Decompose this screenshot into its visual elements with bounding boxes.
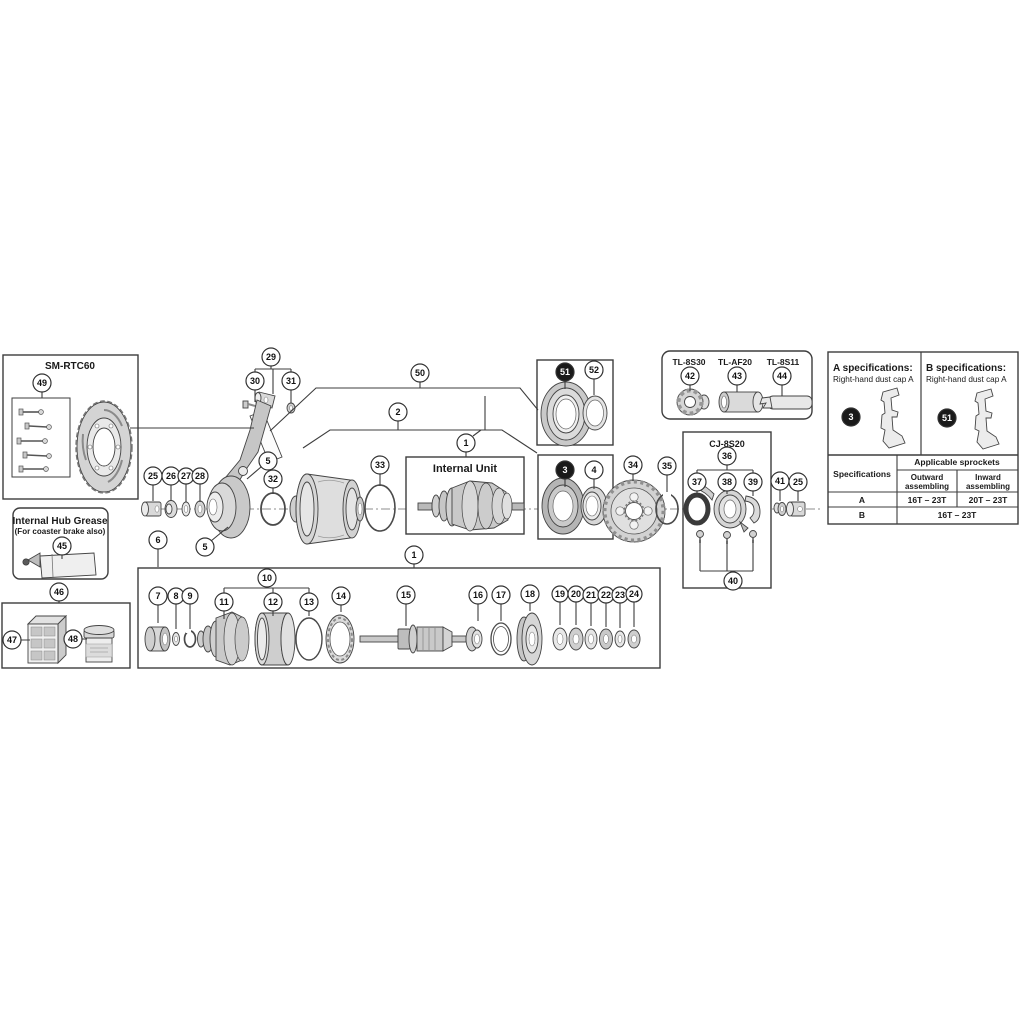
callout-47: 47 — [3, 631, 21, 649]
svg-text:21: 21 — [586, 590, 596, 600]
spec-a-title: A specifications: — [833, 363, 913, 374]
svg-text:28: 28 — [195, 471, 205, 481]
grease-carton — [28, 616, 66, 663]
tool-cylinder-43 — [719, 392, 763, 412]
svg-text:25: 25 — [148, 471, 158, 481]
part-drum-12 — [255, 613, 295, 665]
svg-text:34: 34 — [628, 460, 638, 470]
hub-shell — [290, 474, 364, 544]
part-washer-27 — [182, 502, 190, 516]
callout-5: 5 — [196, 538, 214, 556]
table-col2-line1: Inward — [975, 473, 1001, 482]
svg-text:49: 49 — [37, 378, 47, 388]
svg-text:19: 19 — [555, 589, 565, 599]
part-washer-21 — [585, 629, 597, 649]
callout-3: 3 — [556, 461, 574, 479]
part-ball-ring-14 — [326, 615, 354, 663]
part-washer-23 — [615, 631, 625, 647]
part-washer-8 — [173, 633, 180, 646]
callout-16: 16 — [469, 586, 487, 604]
callout-2: 2 — [389, 403, 407, 421]
svg-text:25: 25 — [793, 477, 803, 487]
brake-arm-pivot — [239, 467, 248, 476]
internal-unit-label: Internal Unit — [433, 463, 498, 475]
callout-17: 17 — [492, 586, 510, 604]
dust-cap-3 — [542, 478, 584, 534]
spec-panel: A specifications: Right-hand dust cap A … — [828, 352, 1018, 524]
svg-text:40: 40 — [728, 576, 738, 586]
callout-15: 15 — [397, 586, 415, 604]
svg-text:13: 13 — [304, 597, 314, 607]
svg-text:37: 37 — [692, 477, 702, 487]
svg-text:2: 2 — [395, 407, 400, 417]
table-row-a-inward: 20T – 23T — [969, 495, 1009, 505]
callout-44: 44 — [773, 367, 791, 385]
svg-text:41: 41 — [775, 476, 785, 486]
callout-4: 4 — [585, 461, 603, 479]
callout-32: 32 — [264, 470, 282, 488]
spec-a-subtitle: Right-hand dust cap A — [833, 375, 914, 384]
callout-20: 20 — [568, 586, 584, 602]
callout-11: 11 — [215, 593, 233, 611]
part-nut-20 — [569, 628, 583, 650]
svg-text:42: 42 — [685, 371, 695, 381]
callout-18: 18 — [521, 585, 539, 603]
spec-b-title: B specifications: — [926, 363, 1006, 374]
tool-label-tl8s30: TL-8S30 — [672, 357, 705, 367]
table-col2-line2: assembling — [966, 482, 1010, 491]
table-row-a-outward: 16T – 23T — [908, 495, 948, 505]
svg-text:44: 44 — [777, 371, 787, 381]
svg-text:14: 14 — [336, 591, 346, 601]
rotor-kit-box: SM-RTC60 — [3, 355, 138, 499]
callout-26: 26 — [162, 467, 180, 485]
table-col1-line2: assembling — [905, 482, 949, 491]
callout-36: 36 — [718, 447, 736, 465]
svg-text:16: 16 — [473, 590, 483, 600]
svg-text:51: 51 — [560, 367, 570, 377]
svg-text:52: 52 — [589, 365, 599, 375]
svg-text:22: 22 — [601, 590, 611, 600]
callout-38: 38 — [718, 473, 736, 491]
part-cap-nut-25 — [142, 502, 162, 516]
svg-text:7: 7 — [155, 591, 160, 601]
svg-text:9: 9 — [187, 591, 192, 601]
callout-42: 42 — [681, 367, 699, 385]
callout-13: 13 — [300, 593, 318, 611]
part-washer-19 — [553, 628, 567, 650]
callout-21: 21 — [583, 587, 599, 603]
callout-31: 31 — [282, 372, 300, 390]
callout-46: 46 — [50, 583, 68, 601]
svg-text:46: 46 — [54, 587, 64, 597]
svg-text:36: 36 — [722, 451, 732, 461]
grease-subtitle: (For coaster brake also) — [15, 527, 106, 536]
spec-b-subtitle: Right-hand dust cap A — [926, 375, 1007, 384]
callout-45: 45 — [53, 537, 71, 555]
part-cone-26 — [165, 501, 177, 518]
callout-19: 19 — [552, 586, 568, 602]
svg-text:50: 50 — [415, 368, 425, 378]
svg-text:26: 26 — [166, 471, 176, 481]
part-flange-unit-18 — [517, 613, 542, 665]
part-cap-nut-24 — [628, 630, 640, 648]
table-col1-line1: Outward — [911, 473, 944, 482]
svg-text:1: 1 — [463, 438, 468, 448]
callout-1: 1 — [405, 546, 423, 564]
svg-text:1: 1 — [411, 550, 416, 560]
svg-text:38: 38 — [722, 477, 732, 487]
svg-text:23: 23 — [615, 590, 625, 600]
table-row-header: Specifications — [833, 469, 891, 479]
table-row-a-spec: A — [859, 495, 865, 505]
svg-text:35: 35 — [662, 461, 672, 471]
tool-wrench-44 — [760, 396, 812, 409]
callout-49: 49 — [33, 374, 51, 392]
o-ring-33 — [365, 485, 395, 531]
svg-text:3: 3 — [848, 412, 853, 422]
callout-35: 35 — [658, 457, 676, 475]
svg-text:17: 17 — [496, 590, 506, 600]
svg-text:8: 8 — [173, 591, 178, 601]
callout-24: 24 — [626, 586, 642, 602]
callout-25: 25 — [789, 473, 807, 491]
svg-text:45: 45 — [57, 541, 67, 551]
part-nut-22 — [600, 629, 613, 649]
callout-12: 12 — [264, 593, 282, 611]
tool-label-tl8s11: TL-8S11 — [767, 357, 800, 367]
callout-50: 50 — [411, 364, 429, 382]
svg-text:5: 5 — [265, 456, 270, 466]
tool-label-tlaf20: TL-AF20 — [718, 357, 752, 367]
table-group-header: Applicable sprockets — [914, 457, 1000, 467]
callout-30: 30 — [246, 372, 264, 390]
callout-48: 48 — [64, 630, 82, 648]
svg-text:27: 27 — [181, 471, 191, 481]
callout-25: 25 — [144, 467, 162, 485]
svg-text:51: 51 — [942, 413, 952, 423]
svg-text:6: 6 — [155, 535, 160, 545]
svg-text:33: 33 — [375, 460, 385, 470]
callout-43: 43 — [728, 367, 746, 385]
callout-51: 51 — [556, 363, 574, 381]
svg-text:3: 3 — [562, 465, 567, 475]
callout-41: 41 — [771, 472, 789, 490]
exploded-diagram: SM-RTC60 Internal Hub Grease (For coaste — [0, 0, 1024, 1024]
callout-33: 33 — [371, 456, 389, 474]
callout-7: 7 — [149, 587, 167, 605]
callout-28: 28 — [192, 468, 208, 484]
callout-14: 14 — [332, 587, 350, 605]
callout-9: 9 — [182, 588, 198, 604]
internal-unit-box: Internal Unit — [406, 457, 524, 534]
seal-ring-52 — [583, 396, 607, 430]
svg-text:39: 39 — [748, 477, 758, 487]
svg-text:24: 24 — [629, 589, 639, 599]
table-row-b-spec: B — [859, 510, 865, 520]
callout-1: 1 — [457, 434, 475, 452]
svg-text:43: 43 — [732, 371, 742, 381]
callout-51: 51 — [938, 409, 956, 427]
callout-34: 34 — [624, 456, 642, 474]
svg-text:29: 29 — [266, 352, 276, 362]
svg-text:11: 11 — [219, 597, 229, 607]
svg-text:48: 48 — [68, 634, 78, 644]
svg-text:31: 31 — [286, 376, 296, 386]
callout-29: 29 — [262, 348, 280, 366]
svg-text:20: 20 — [571, 589, 581, 599]
brake-cone-unit — [207, 476, 250, 538]
part-washer-28 — [195, 501, 205, 517]
svg-text:18: 18 — [525, 589, 535, 599]
svg-text:4: 4 — [591, 465, 596, 475]
grease-title: Internal Hub Grease — [12, 516, 107, 527]
callout-40: 40 — [724, 572, 742, 590]
callout-39: 39 — [744, 473, 762, 491]
svg-text:32: 32 — [268, 474, 278, 484]
svg-text:30: 30 — [250, 376, 260, 386]
exploded-parts-diagram-page: SM-RTC60 Internal Hub Grease (For coaste — [0, 0, 1024, 1024]
small-parts-41-25 — [774, 502, 805, 516]
axle-assembly-box — [138, 568, 660, 668]
callout-3: 3 — [842, 408, 860, 426]
svg-text:5: 5 — [202, 542, 207, 552]
svg-text:15: 15 — [401, 590, 411, 600]
svg-text:10: 10 — [262, 573, 272, 583]
part-cone-7 — [145, 627, 170, 651]
callout-10: 10 — [258, 569, 276, 587]
grease-jar — [84, 626, 114, 663]
callout-6: 6 — [149, 531, 167, 549]
svg-text:47: 47 — [7, 635, 17, 645]
table-row-b-both: 16T – 23T — [938, 510, 978, 520]
callout-5: 5 — [259, 452, 277, 470]
callout-52: 52 — [585, 361, 603, 379]
rotor-kit-label: SM-RTC60 — [45, 361, 95, 372]
svg-text:12: 12 — [268, 597, 278, 607]
callout-37: 37 — [688, 473, 706, 491]
